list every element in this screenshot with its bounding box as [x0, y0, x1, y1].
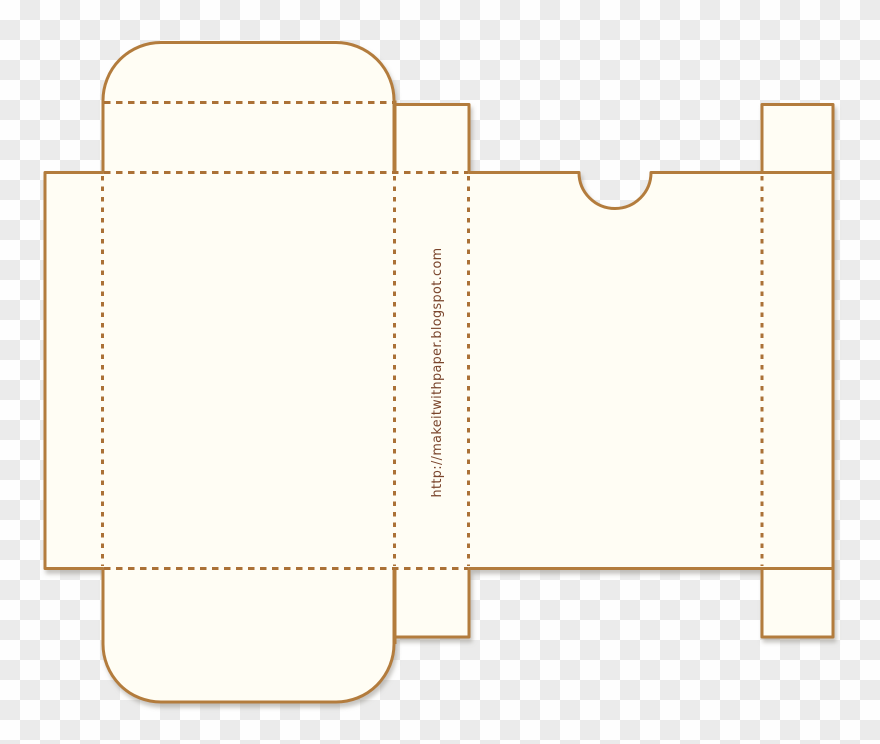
watermark-url-text: http://makeitwithpaper.blogspot.com — [429, 248, 445, 498]
transparency-checkerboard: http://makeitwithpaper.blogspot.com — [0, 0, 880, 744]
box-template-svg: http://makeitwithpaper.blogspot.com — [0, 0, 880, 744]
